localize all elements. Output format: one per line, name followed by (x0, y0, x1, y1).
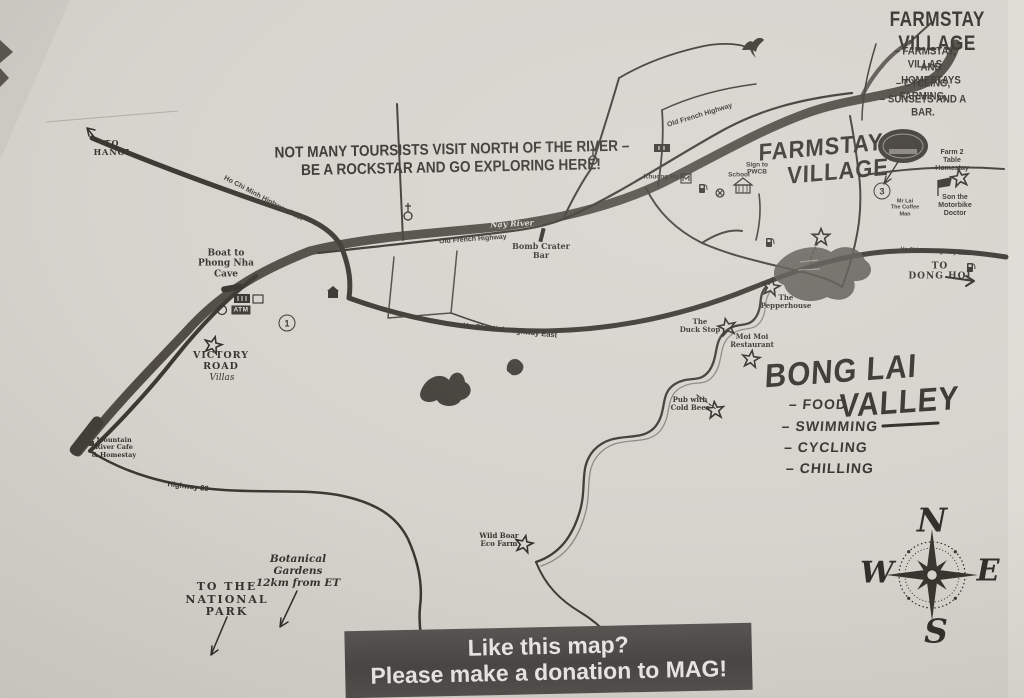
terrain-blobs (68, 38, 871, 458)
bong-lai-item-cycling: – CYCLING (783, 439, 868, 455)
fuel-pump-icon (766, 238, 774, 247)
wild-boar-label: Wild Boar Eco Farm (479, 532, 518, 548)
victory-road-label: VICTORY ROAD (193, 351, 249, 373)
farm-2-table-label: Farm 2 Table Homestay (935, 149, 968, 173)
route-marker-1: 1 (279, 315, 296, 332)
route-marker-3: 3 (874, 183, 891, 200)
school-label: School (728, 171, 750, 178)
ferry-icon (654, 144, 670, 152)
compass-rose-icon (886, 529, 978, 621)
boat-phong-nha-label: Boat to Phong Nha Cave (198, 248, 254, 279)
moi-moi-label: Moi Moi Restaurant (730, 333, 774, 349)
victory-road-villas-label: Villas (210, 373, 235, 383)
church-icon (404, 203, 412, 220)
banner-line2: Please make a donation to MAG! (370, 656, 727, 691)
school-building-icon (734, 178, 752, 193)
compass-e-label: E (977, 554, 1000, 589)
fuel-pump-icon (699, 184, 707, 193)
hill-blob (420, 373, 471, 406)
compass-n-label: N (917, 501, 947, 540)
valley-underline (883, 423, 938, 426)
khuong-ha-label: Khuong Ha (644, 173, 679, 180)
bong-lai-item-chilling: – CHILLING (785, 460, 874, 476)
mountain-river-label: Mountain River Cafe & Homestay (92, 437, 136, 459)
botanical-arrow (280, 591, 297, 627)
duck-stop-label: The Duck Stop (680, 318, 721, 334)
pepperhouse-label: The Pepperhouse (761, 294, 812, 310)
pub-cold-beer-label: Pub with Cold Beer (671, 396, 710, 412)
son-motorbike-label: Son the Motorbike Doctor (938, 194, 971, 218)
small-blob (507, 359, 524, 375)
map-photo: FARMSTAY VILLAGE – FARMSTAY, VILLAS AND … (0, 0, 1024, 698)
farmstay-legend-item: – SUNSETS AND A BAR. (879, 93, 968, 118)
compass-s-label: S (924, 612, 948, 651)
atm-sign: ATM (231, 306, 250, 315)
coffee-man-label: Mr Lai The Coffee Man (891, 199, 919, 218)
to-hanoi-label: TO HANOI (94, 139, 131, 157)
compass-w-label: W (860, 556, 894, 591)
medical-cross-icon (716, 189, 724, 197)
lake-star-icon (812, 229, 829, 245)
banner-line1: Like this map? (467, 632, 629, 661)
donation-banner: Like this map? Please make a donation to… (344, 623, 752, 698)
bird-icon (742, 38, 764, 58)
to-dong-hoi-label: TO DONG HOI (908, 262, 971, 283)
national-park-arrow (211, 617, 227, 655)
bong-lai-item-swimming: – SWIMMING (781, 418, 879, 434)
bomb-crater-bar-label: Bomb Crater Bar (512, 242, 570, 260)
moi-moi-star-icon (741, 349, 760, 367)
bong-lai-item-food: – FOOD (788, 396, 848, 412)
village-building-icon (327, 286, 339, 298)
botanical-gardens-label: Botanical Gardens 12km from ET (256, 553, 340, 589)
